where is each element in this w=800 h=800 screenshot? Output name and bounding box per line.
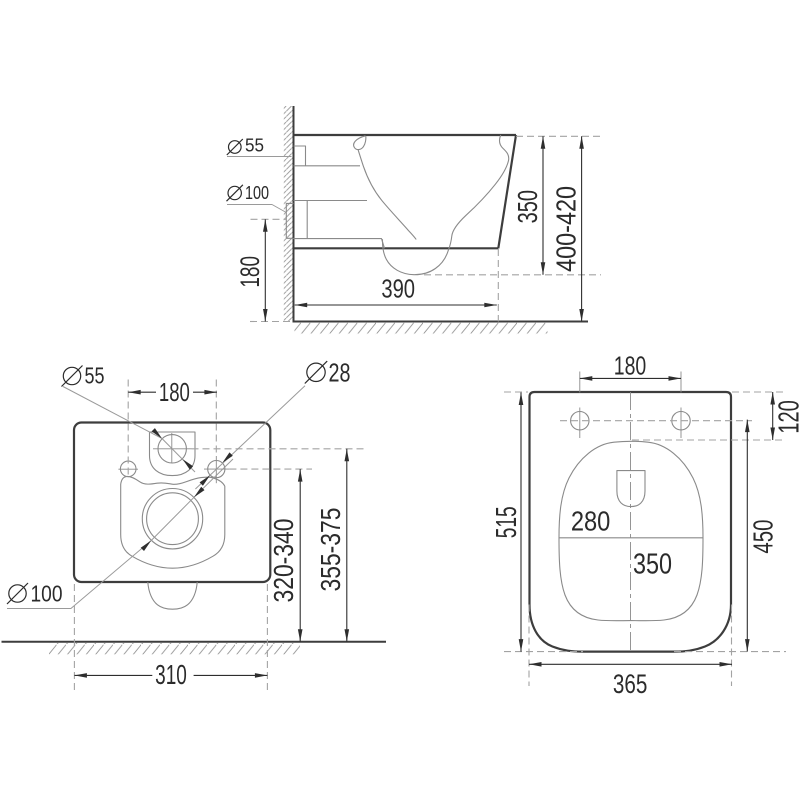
svg-text:350: 350 (633, 549, 672, 581)
svg-text:180: 180 (159, 377, 190, 407)
svg-text:400-420: 400-420 (550, 186, 581, 272)
svg-text:280: 280 (571, 506, 611, 537)
svg-text:365: 365 (613, 669, 648, 699)
svg-text:390: 390 (381, 276, 415, 304)
svg-text:355-375: 355-375 (315, 508, 346, 592)
svg-text:28: 28 (329, 360, 351, 388)
svg-text:55: 55 (85, 362, 105, 388)
svg-text:100: 100 (31, 581, 63, 607)
svg-text:515: 515 (491, 506, 523, 538)
svg-text:450: 450 (748, 520, 779, 554)
svg-text:180: 180 (235, 256, 265, 288)
svg-text:100: 100 (245, 182, 269, 203)
svg-text:320-340: 320-340 (268, 519, 299, 603)
svg-text:180: 180 (614, 350, 647, 380)
svg-text:55: 55 (245, 136, 264, 156)
svg-text:120: 120 (774, 400, 800, 434)
svg-text:350: 350 (512, 190, 543, 223)
svg-text:310: 310 (155, 659, 187, 690)
